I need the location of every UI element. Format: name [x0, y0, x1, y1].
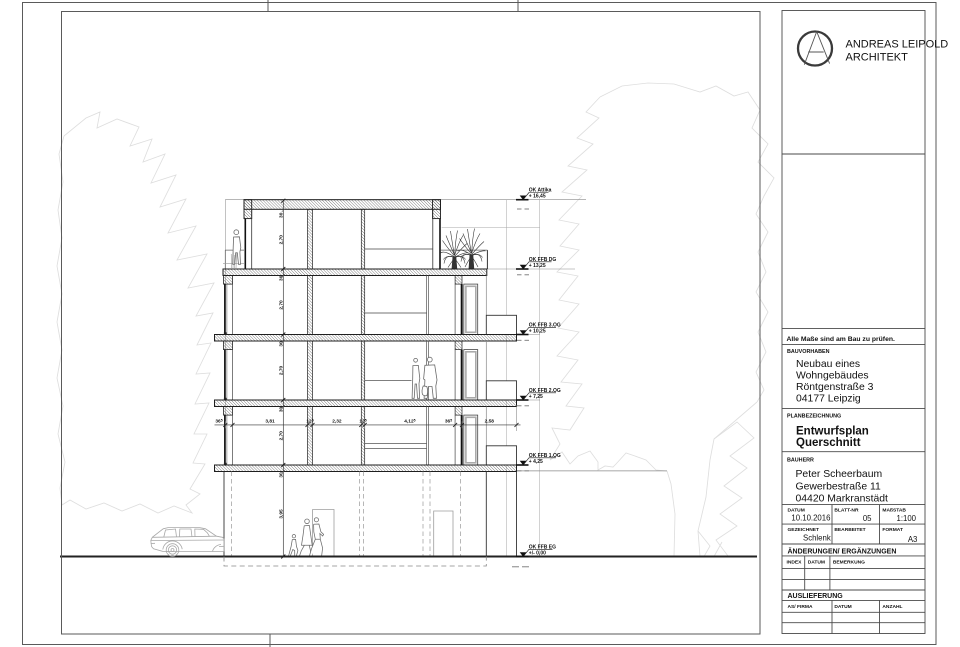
svg-text:+ 13,25: + 13,25	[529, 263, 546, 269]
svg-text:Entwurfsplan: Entwurfsplan	[796, 426, 869, 438]
svg-text:3,81: 3,81	[265, 419, 275, 425]
svg-text:AUSLIEFERUNG: AUSLIEFERUNG	[788, 593, 844, 600]
svg-text:PLANBEZEICHNUNG: PLANBEZEICHNUNG	[787, 414, 841, 420]
svg-text:30: 30	[278, 275, 284, 281]
svg-text:FORMAT: FORMAT	[882, 527, 903, 533]
svg-text:2,70: 2,70	[278, 300, 284, 310]
svg-text:Röntgenstraße 3: Röntgenstraße 3	[796, 382, 874, 393]
svg-text:Gewerbestraße 11: Gewerbestraße 11	[796, 482, 882, 493]
svg-text:A3: A3	[908, 535, 918, 544]
svg-text:30: 30	[278, 407, 284, 413]
svg-text:Wohngebäudes: Wohngebäudes	[796, 371, 869, 382]
svg-text:DATUM: DATUM	[808, 560, 825, 566]
svg-text:ARCHITEKT: ARCHITEKT	[846, 52, 909, 64]
svg-text:MAßSTAB: MAßSTAB	[882, 508, 906, 514]
svg-text:+ 10,25: + 10,25	[529, 328, 546, 334]
svg-text:ÄNDERUNGEN/ ERGÄNZUNGEN: ÄNDERUNGEN/ ERGÄNZUNGEN	[788, 548, 897, 556]
svg-text:+/- 0,00: +/- 0,00	[529, 550, 546, 556]
svg-text:Alle Maße sind am Bau zu prüfe: Alle Maße sind am Bau zu prüfen.	[787, 336, 896, 343]
svg-text:Querschnitt: Querschnitt	[796, 437, 861, 449]
svg-text:AS/ FIRMA: AS/ FIRMA	[788, 604, 813, 610]
svg-text:INDEX: INDEX	[787, 560, 803, 566]
svg-text:1:100: 1:100	[896, 514, 916, 523]
svg-text:ANDREAS LEIPOLD: ANDREAS LEIPOLD	[846, 39, 949, 51]
svg-text:BEMERKUNG: BEMERKUNG	[833, 560, 865, 566]
svg-text:BAUHERR: BAUHERR	[787, 458, 814, 464]
svg-text:DATUM: DATUM	[834, 604, 851, 610]
svg-text:05: 05	[863, 514, 872, 523]
svg-text:Schlenk: Schlenk	[803, 534, 831, 543]
svg-text:BEARBEITET: BEARBEITET	[834, 527, 865, 533]
svg-text:GEZEICHNET: GEZEICHNET	[788, 527, 820, 533]
svg-text:3,95: 3,95	[278, 509, 284, 519]
svg-text:BAUVORHABEN: BAUVORHABEN	[787, 349, 830, 355]
svg-text:04177 Leipzig: 04177 Leipzig	[796, 394, 861, 405]
svg-text:4,125: 4,125	[404, 418, 415, 424]
svg-text:ANZAHL: ANZAHL	[882, 604, 902, 610]
svg-text:365: 365	[445, 418, 452, 424]
svg-text:+ 16,45: + 16,45	[529, 194, 546, 200]
svg-text:Peter Scheerbaum: Peter Scheerbaum	[796, 469, 883, 480]
svg-text:2,32: 2,32	[332, 419, 342, 425]
svg-text:365: 365	[215, 418, 222, 424]
svg-text:+ 4,25: + 4,25	[529, 459, 543, 465]
svg-text:30: 30	[278, 341, 284, 347]
svg-text:2,58: 2,58	[485, 419, 495, 425]
svg-text:30: 30	[278, 212, 284, 218]
svg-text:2,70: 2,70	[278, 431, 284, 441]
svg-text:04420 Markranstädt: 04420 Markranstädt	[796, 494, 889, 505]
svg-text:Neubau eines: Neubau eines	[796, 359, 860, 370]
svg-text:BLATT-NR: BLATT-NR	[834, 508, 859, 514]
svg-text:2,70: 2,70	[278, 235, 284, 245]
svg-text:+ 7,25: + 7,25	[529, 394, 543, 400]
svg-text:30: 30	[278, 472, 284, 478]
svg-text:10.10.2016: 10.10.2016	[791, 514, 830, 523]
svg-text:2,70: 2,70	[278, 366, 284, 376]
